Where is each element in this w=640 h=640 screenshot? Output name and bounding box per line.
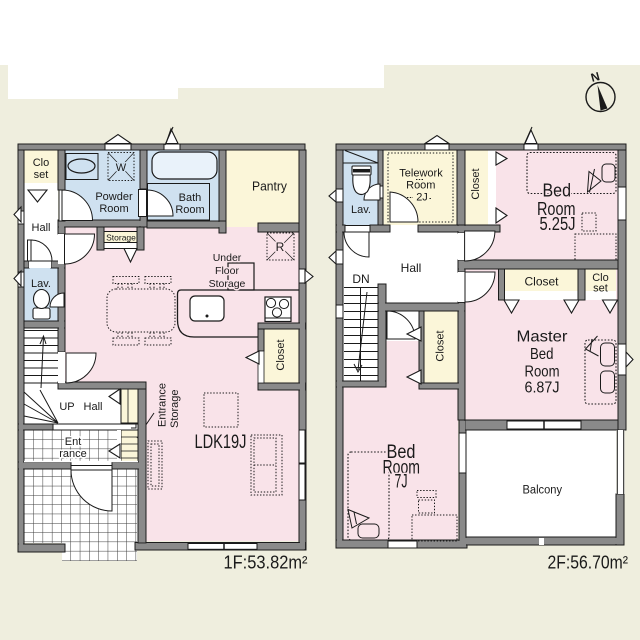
svg-text:5.25J: 5.25J — [540, 214, 576, 234]
svg-text:Room: Room — [99, 203, 128, 215]
svg-text:Room: Room — [525, 364, 560, 381]
svg-text:Floor: Floor — [215, 265, 239, 277]
svg-text:Ent: Ent — [65, 436, 82, 448]
svg-text:Storage: Storage — [106, 233, 136, 243]
svg-text:Hall: Hall — [32, 222, 51, 234]
svg-text:Storage: Storage — [169, 389, 181, 428]
svg-text:set: set — [593, 283, 608, 295]
svg-text:LDK19J: LDK19J — [195, 432, 247, 453]
svg-text:Bed: Bed — [530, 346, 554, 363]
svg-text:Telework: Telework — [399, 167, 443, 179]
svg-text:Storage: Storage — [209, 278, 246, 290]
svg-text:rance: rance — [59, 448, 87, 460]
svg-text:1F:53.82m²: 1F:53.82m² — [224, 553, 308, 573]
svg-text:UP: UP — [59, 401, 74, 413]
svg-text:Master: Master — [517, 329, 569, 346]
svg-text:2F:56.70m²: 2F:56.70m² — [548, 553, 629, 573]
svg-text:Closet: Closet — [524, 275, 559, 289]
svg-text:set: set — [34, 169, 49, 181]
svg-text:Entrance: Entrance — [157, 383, 169, 427]
svg-text:Balcony: Balcony — [523, 485, 563, 497]
svg-text:Powder: Powder — [95, 191, 133, 203]
svg-text:W: W — [116, 162, 127, 174]
svg-text:Clo: Clo — [33, 157, 50, 169]
svg-text:Bed: Bed — [543, 181, 572, 201]
svg-text:7J: 7J — [395, 472, 408, 493]
svg-text:DN: DN — [352, 272, 369, 286]
svg-text:Closet: Closet — [470, 168, 482, 199]
svg-text:Room: Room — [175, 204, 204, 216]
svg-text:R: R — [276, 240, 285, 254]
svg-text:Hall: Hall — [84, 401, 103, 413]
svg-text:Hall: Hall — [401, 261, 422, 275]
svg-text:Lav.: Lav. — [31, 278, 51, 290]
svg-text:Pantry: Pantry — [252, 180, 288, 194]
svg-text:Closet: Closet — [435, 330, 447, 361]
svg-text:Closet: Closet — [275, 339, 287, 370]
svg-text:6.87J: 6.87J — [525, 380, 560, 397]
svg-text:2J: 2J — [416, 191, 428, 203]
svg-text:Under: Under — [213, 252, 242, 264]
svg-text:Room: Room — [406, 179, 435, 191]
svg-text:Lav.: Lav. — [351, 204, 371, 216]
svg-text:Bath: Bath — [179, 192, 202, 204]
